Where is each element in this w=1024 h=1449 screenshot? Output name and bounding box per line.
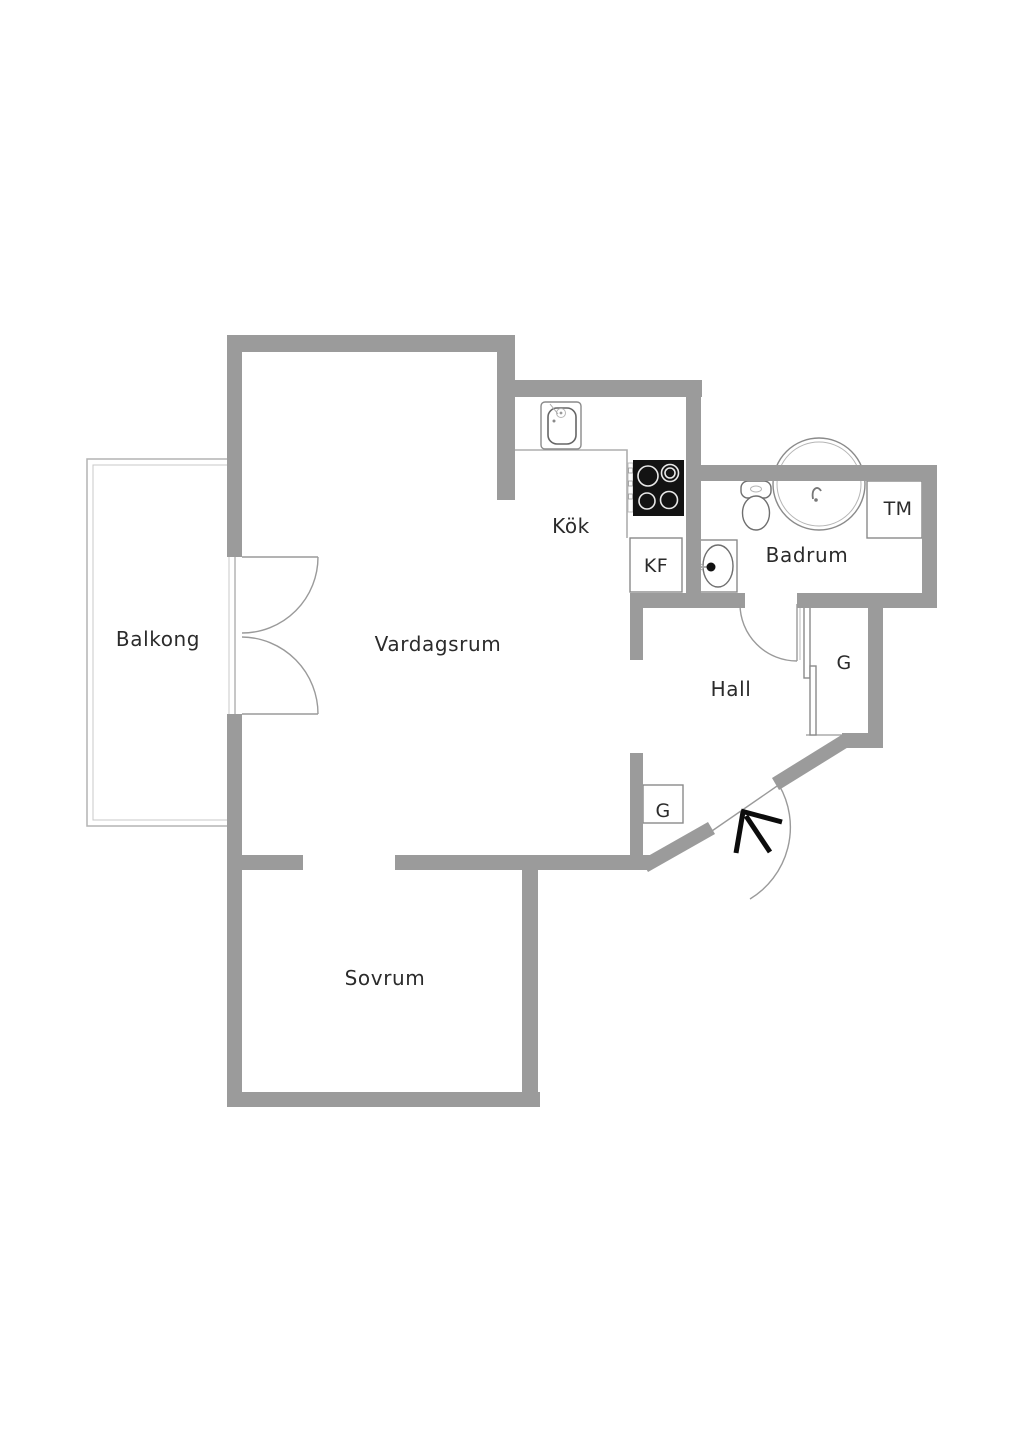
entrance-arrow	[736, 811, 782, 853]
room-label-bedroom: Sovrum	[345, 966, 426, 990]
room-label-bathroom: Badrum	[766, 543, 849, 567]
room-label-kitchen: Kök	[552, 514, 590, 538]
entrance-door	[709, 784, 790, 899]
kitchen-sink-icon	[541, 402, 581, 449]
floor-plan: Balkong Vardagsrum Kök Badrum Hall Sovru…	[0, 0, 1024, 1449]
balcony-door	[242, 557, 318, 714]
bathroom-sink-icon	[697, 540, 737, 592]
floor-plan-svg: Balkong Vardagsrum Kök Badrum Hall Sovru…	[0, 0, 1024, 1449]
label-fridge-freezer: KF	[644, 555, 668, 577]
room-label-living-room: Vardagsrum	[375, 632, 502, 656]
label-wardrobe-left: G	[655, 800, 670, 822]
label-washing-machine: TM	[883, 498, 913, 520]
toilet-icon	[741, 481, 771, 530]
room-label-hall: Hall	[711, 677, 752, 701]
room-label-balcony: Balkong	[116, 627, 200, 651]
wardrobe-right-box	[800, 604, 868, 735]
doors	[242, 557, 797, 899]
wash-basin-icon	[773, 438, 865, 530]
label-wardrobe-right: G	[836, 652, 851, 674]
stove-icon	[628, 460, 684, 516]
bathroom-door	[740, 604, 797, 661]
